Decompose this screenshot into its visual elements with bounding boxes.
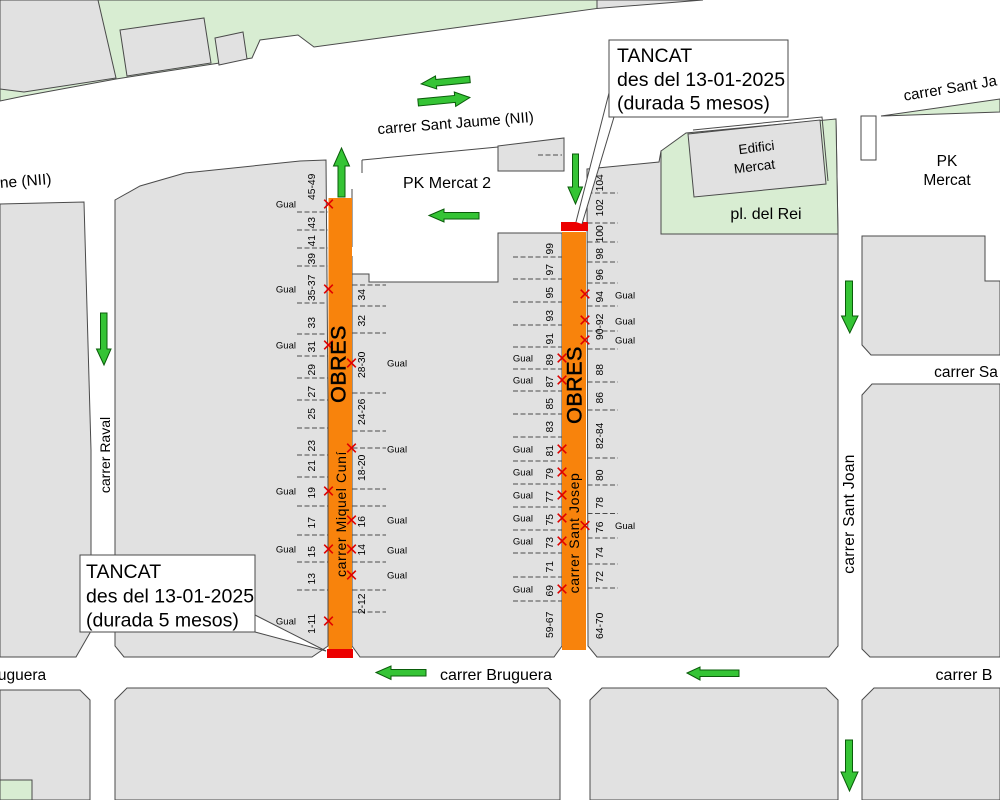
svg-text:Gual: Gual (276, 285, 296, 296)
svg-text:des del 13-01-2025: des del 13-01-2025 (86, 586, 254, 608)
svg-text:69: 69 (545, 585, 556, 597)
svg-text:33: 33 (307, 317, 318, 329)
svg-text:90-92: 90-92 (595, 313, 606, 340)
svg-text:45-49: 45-49 (307, 173, 318, 200)
svg-text:Gual: Gual (513, 354, 533, 365)
svg-text:75: 75 (545, 514, 556, 526)
svg-text:Gual: Gual (276, 617, 296, 628)
svg-text:23: 23 (307, 440, 318, 452)
svg-text:31: 31 (307, 341, 318, 353)
svg-text:Gual: Gual (387, 516, 407, 527)
svg-text:15: 15 (307, 546, 318, 558)
svg-text:Gual: Gual (276, 545, 296, 556)
svg-text:89: 89 (545, 354, 556, 366)
svg-text:Gual: Gual (615, 521, 635, 532)
svg-text:18-20: 18-20 (357, 454, 368, 481)
svg-text:91: 91 (545, 333, 556, 345)
svg-text:Gual: Gual (615, 317, 635, 328)
svg-text:81: 81 (545, 445, 556, 457)
svg-text:carrer B: carrer B (936, 667, 993, 684)
svg-text:des del 13-01-2025: des del 13-01-2025 (617, 69, 785, 91)
svg-text:carrer Raval: carrer Raval (97, 417, 113, 493)
svg-text:28-30: 28-30 (357, 351, 368, 378)
svg-text:79: 79 (545, 468, 556, 480)
svg-text:34: 34 (357, 289, 368, 301)
svg-text:85: 85 (545, 398, 556, 410)
svg-text:27: 27 (307, 386, 318, 398)
svg-text:Gual: Gual (615, 291, 635, 302)
svg-text:77: 77 (545, 491, 556, 503)
svg-text:carrer Sa: carrer Sa (934, 364, 998, 381)
svg-text:87: 87 (545, 376, 556, 388)
svg-text:Gual: Gual (276, 487, 296, 498)
svg-text:(durada 5 mesos): (durada 5 mesos) (86, 610, 239, 632)
svg-text:Gual: Gual (513, 468, 533, 479)
svg-text:Gual: Gual (276, 200, 296, 211)
svg-text:2-12: 2-12 (357, 593, 368, 614)
svg-text:Gual: Gual (387, 359, 407, 370)
svg-text:86: 86 (595, 392, 606, 404)
svg-text:Gual: Gual (387, 546, 407, 557)
svg-text:97: 97 (545, 264, 556, 276)
svg-text:PK: PK (937, 153, 958, 170)
svg-text:21: 21 (307, 460, 318, 472)
svg-text:TANCAT: TANCAT (617, 45, 692, 67)
svg-text:Gual: Gual (513, 537, 533, 548)
svg-text:25: 25 (307, 408, 318, 420)
svg-text:13: 13 (307, 573, 318, 585)
svg-text:43: 43 (307, 217, 318, 229)
svg-text:carrer Sant Josep: carrer Sant Josep (566, 473, 582, 594)
svg-text:16: 16 (357, 516, 368, 528)
svg-text:64-70: 64-70 (595, 612, 606, 639)
svg-text:Gual: Gual (387, 445, 407, 456)
svg-text:41: 41 (307, 235, 318, 247)
svg-text:1-11: 1-11 (307, 614, 318, 634)
svg-text:32: 32 (357, 315, 368, 327)
svg-text:80: 80 (595, 469, 606, 481)
svg-text:78: 78 (595, 497, 606, 509)
svg-text:24-26: 24-26 (357, 398, 368, 425)
svg-text:98: 98 (595, 248, 606, 260)
svg-text:Gual: Gual (513, 585, 533, 596)
svg-text:Gual: Gual (513, 514, 533, 525)
svg-text:OBRES: OBRES (563, 346, 587, 424)
svg-text:88: 88 (595, 364, 606, 376)
svg-text:Gual: Gual (513, 445, 533, 456)
svg-text:uguera: uguera (0, 667, 47, 684)
svg-text:Mercat: Mercat (923, 172, 971, 189)
svg-text:pl. del Rei: pl. del Rei (730, 206, 801, 223)
svg-text:72: 72 (595, 571, 606, 583)
svg-text:TANCAT: TANCAT (86, 561, 161, 583)
svg-text:carrer Sant Joan: carrer Sant Joan (841, 454, 858, 573)
svg-text:OBRES: OBRES (327, 325, 351, 403)
svg-text:93: 93 (545, 310, 556, 322)
svg-text:94: 94 (595, 291, 606, 303)
svg-text:76: 76 (595, 521, 606, 533)
svg-text:95: 95 (545, 287, 556, 299)
svg-text:carrer Miquel Cuní: carrer Miquel Cuní (333, 451, 349, 577)
svg-text:100: 100 (595, 225, 606, 242)
svg-text:74: 74 (595, 547, 606, 559)
svg-text:96: 96 (595, 269, 606, 281)
svg-text:Gual: Gual (513, 376, 533, 387)
svg-text:17: 17 (307, 517, 318, 529)
svg-text:39: 39 (307, 253, 318, 265)
svg-text:82-84: 82-84 (595, 422, 606, 449)
svg-text:Gual: Gual (276, 341, 296, 352)
svg-text:71: 71 (545, 561, 556, 573)
svg-text:Gual: Gual (513, 491, 533, 502)
svg-text:14: 14 (357, 544, 368, 556)
svg-text:99: 99 (545, 243, 556, 255)
svg-text:29: 29 (307, 364, 318, 376)
svg-text:73: 73 (545, 537, 556, 549)
svg-text:83: 83 (545, 421, 556, 433)
svg-text:PK Mercat 2: PK Mercat 2 (403, 175, 491, 192)
svg-text:Gual: Gual (615, 336, 635, 347)
svg-text:(durada 5 mesos): (durada 5 mesos) (617, 93, 770, 115)
svg-text:Gual: Gual (387, 571, 407, 582)
svg-text:59-67: 59-67 (545, 611, 556, 638)
svg-text:carrer Bruguera: carrer Bruguera (440, 667, 552, 684)
svg-text:19: 19 (307, 487, 318, 499)
svg-text:35-37: 35-37 (307, 274, 318, 301)
svg-text:102: 102 (595, 199, 606, 216)
